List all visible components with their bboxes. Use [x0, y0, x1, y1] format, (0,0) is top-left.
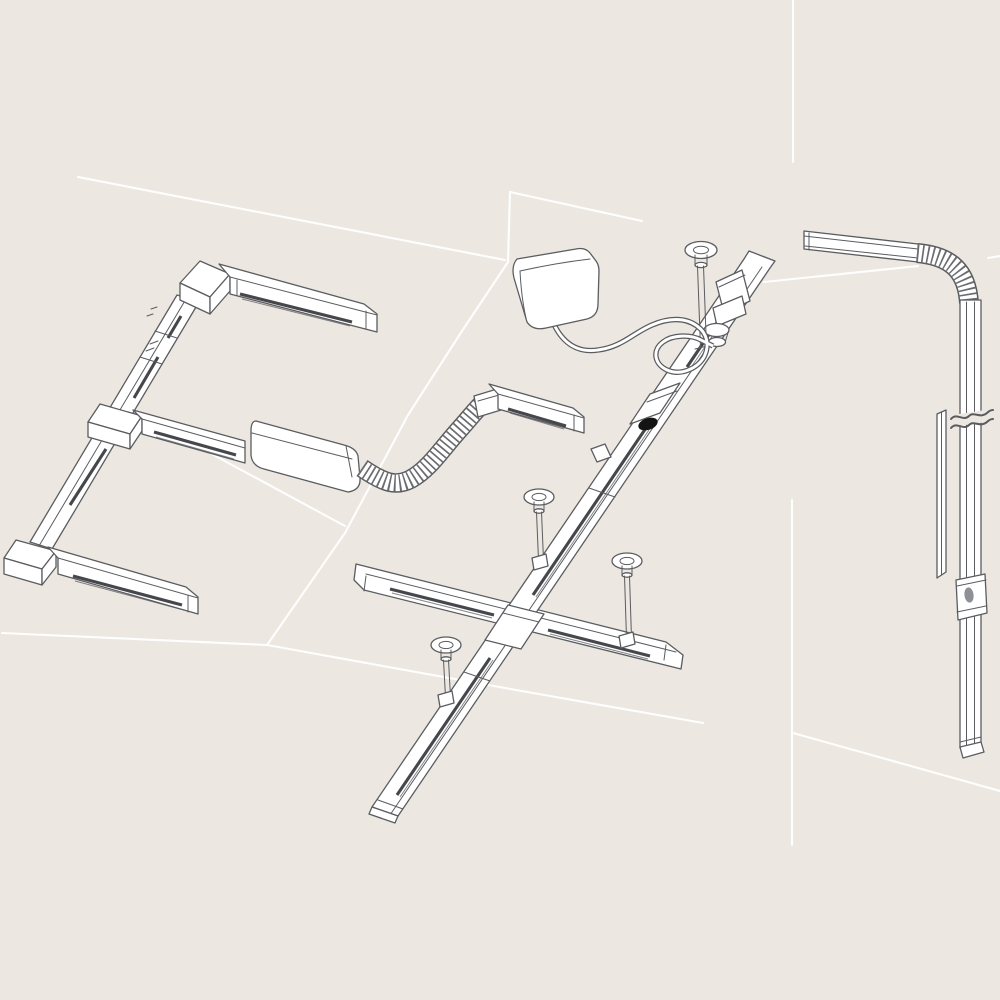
canopy-stem-ring [622, 573, 632, 577]
power-feed-box [513, 249, 599, 329]
canopy-stem-ring [695, 262, 707, 267]
track-cover-profile [937, 410, 946, 578]
wall-track-vertical [960, 300, 981, 748]
ceiling-canopy [431, 637, 461, 653]
ceiling-canopy [612, 553, 642, 569]
canopy-stem-ring [441, 657, 451, 661]
ceiling-canopy [524, 489, 554, 505]
strain-relief-collar [704, 324, 729, 337]
illustration-canvas [0, 0, 1000, 1000]
ceiling-canopy [685, 242, 717, 259]
illustration-page [0, 0, 1000, 1000]
background [0, 0, 1000, 1000]
rail-body [960, 300, 981, 748]
canopy-stem-ring [534, 509, 544, 513]
track-connector-block [956, 574, 987, 620]
